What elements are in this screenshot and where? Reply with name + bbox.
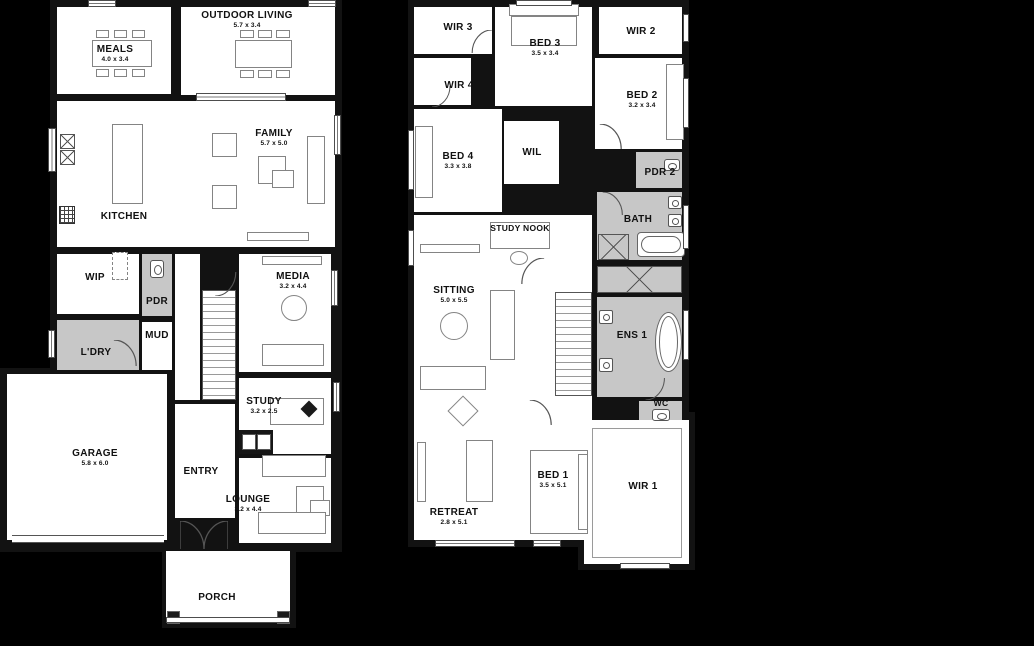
chair (132, 69, 145, 77)
staircase-ground (202, 290, 236, 400)
door-arc (528, 400, 553, 425)
room-label-wir2: WIR 2 (626, 26, 655, 38)
room-label-wir1: WIR 1 (628, 481, 657, 493)
room-label-sitting: SITTING5.0 x 5.5 (433, 285, 475, 304)
media-table (281, 295, 307, 321)
room-label-family: FAMILY5.7 x 5.0 (255, 128, 293, 147)
window (516, 0, 572, 6)
study-cabinet (239, 430, 273, 454)
window (334, 115, 341, 155)
window (48, 128, 56, 172)
outdoor-table (235, 40, 292, 68)
chair (96, 30, 109, 38)
toilet-icon (652, 409, 670, 421)
chair (276, 70, 290, 78)
door-arc (598, 124, 623, 149)
door-arc (112, 340, 138, 366)
room-label-pdr: PDR (146, 296, 168, 308)
chair (96, 69, 109, 77)
bathtub (637, 232, 685, 257)
armchair (212, 185, 237, 209)
round-table (440, 312, 468, 340)
entry-door-arc (204, 521, 228, 549)
sitting-sofa (420, 366, 486, 390)
room-label-meals: MEALS4.0 x 3.4 (97, 44, 134, 63)
window (88, 0, 116, 7)
fridge-space (112, 252, 128, 280)
vanity-basin (668, 214, 682, 227)
room-label-wil: WIL (522, 147, 541, 159)
shower (598, 234, 629, 260)
porch-edge (166, 617, 290, 623)
chair (114, 30, 127, 38)
tv-unit (262, 256, 322, 265)
oven-icon (60, 150, 75, 165)
door-arc (214, 272, 237, 296)
window (48, 330, 55, 358)
room-label-bed2: BED 23.2 x 3.4 (627, 90, 658, 109)
window (683, 78, 689, 128)
door-arc (643, 378, 667, 400)
lounge-sofa (258, 512, 326, 534)
door-arc (520, 258, 546, 284)
armchair (212, 133, 237, 157)
freestanding-bath (655, 312, 682, 372)
vanity-basin (599, 358, 613, 372)
window (683, 310, 689, 360)
window (620, 563, 670, 569)
sitting-sofa (490, 290, 515, 360)
chair (258, 70, 272, 78)
chair (240, 30, 254, 38)
room-label-wc: WC (654, 399, 669, 409)
door-arc (599, 192, 626, 215)
floor-plan-canvas: MEALS4.0 x 3.4 OUTDOOR LIVING5.7 x 3.4 K… (0, 0, 1034, 646)
room-label-entry: ENTRY (183, 466, 218, 478)
room-label-wip: WIP (85, 272, 105, 284)
tv-unit (247, 232, 309, 241)
tv-unit (420, 244, 480, 253)
window (308, 0, 336, 7)
sliding-door (435, 540, 515, 547)
vanity-basin (599, 310, 613, 324)
window (333, 382, 340, 412)
chair (258, 30, 272, 38)
oven-icon (60, 134, 75, 149)
bedhead (578, 454, 588, 530)
staircase-first (555, 292, 592, 396)
window (408, 130, 414, 190)
room-label-bed4: BED 43.3 x 3.8 (443, 151, 474, 170)
chair (132, 30, 145, 38)
room-label-retreat: RETREAT2.8 x 5.1 (430, 507, 479, 526)
bed2-bed (666, 64, 684, 140)
room-label-kitchen: KITCHEN (101, 211, 148, 223)
room-label-bed3: BED 33.5 x 3.4 (530, 38, 561, 57)
room-porch (166, 551, 290, 622)
room-label-garage: GARAGE5.8 x 6.0 (72, 448, 118, 467)
coffee-table (272, 170, 294, 188)
window (683, 205, 689, 249)
linen-cupboard (597, 266, 682, 293)
kitchen-island (112, 124, 143, 204)
toilet-icon (150, 260, 164, 278)
room-label-ens1: ENS 1 (617, 330, 647, 342)
room-label-ldry: L'DRY (81, 347, 112, 359)
room-label-bath: BATH (624, 214, 652, 226)
room-label-mud: MUD (145, 330, 169, 342)
vanity-basin (668, 196, 682, 209)
tv-unit (417, 442, 426, 502)
room-label-media: MEDIA3.2 x 4.4 (276, 271, 310, 290)
room-label-outdoor-living: OUTDOOR LIVING5.7 x 3.4 (201, 10, 292, 29)
pantry-shelves (59, 206, 75, 224)
window (331, 270, 338, 306)
room-label-bed1: BED 13.5 x 5.1 (538, 470, 569, 489)
hallway-ground (175, 254, 200, 400)
chair (114, 69, 127, 77)
room-label-lounge: LOUNGE3.2 x 4.4 (226, 494, 271, 513)
room-label-study-nook: STUDY NOOK (490, 224, 550, 234)
room-label-wir3: WIR 3 (443, 22, 472, 34)
family-sofa (307, 136, 325, 204)
window (683, 14, 689, 42)
lounge-sofa (262, 455, 326, 477)
room-label-porch: PORCH (198, 592, 236, 604)
chair (276, 30, 290, 38)
window (533, 540, 561, 547)
window (408, 230, 414, 266)
stacker-door (196, 93, 286, 101)
room-label-wir4: WIR 4 (444, 80, 473, 92)
bed4-bed (415, 126, 433, 198)
room-label-study: STUDY3.2 x 2.5 (246, 396, 281, 415)
chair (240, 70, 254, 78)
media-sofa (262, 344, 324, 366)
room-label-pdr2: PDR 2 (645, 167, 676, 179)
entry-door-arc (180, 521, 204, 549)
wardrobe-shelving (592, 428, 682, 558)
retreat-sofa (466, 440, 493, 502)
garage-door (12, 535, 164, 543)
